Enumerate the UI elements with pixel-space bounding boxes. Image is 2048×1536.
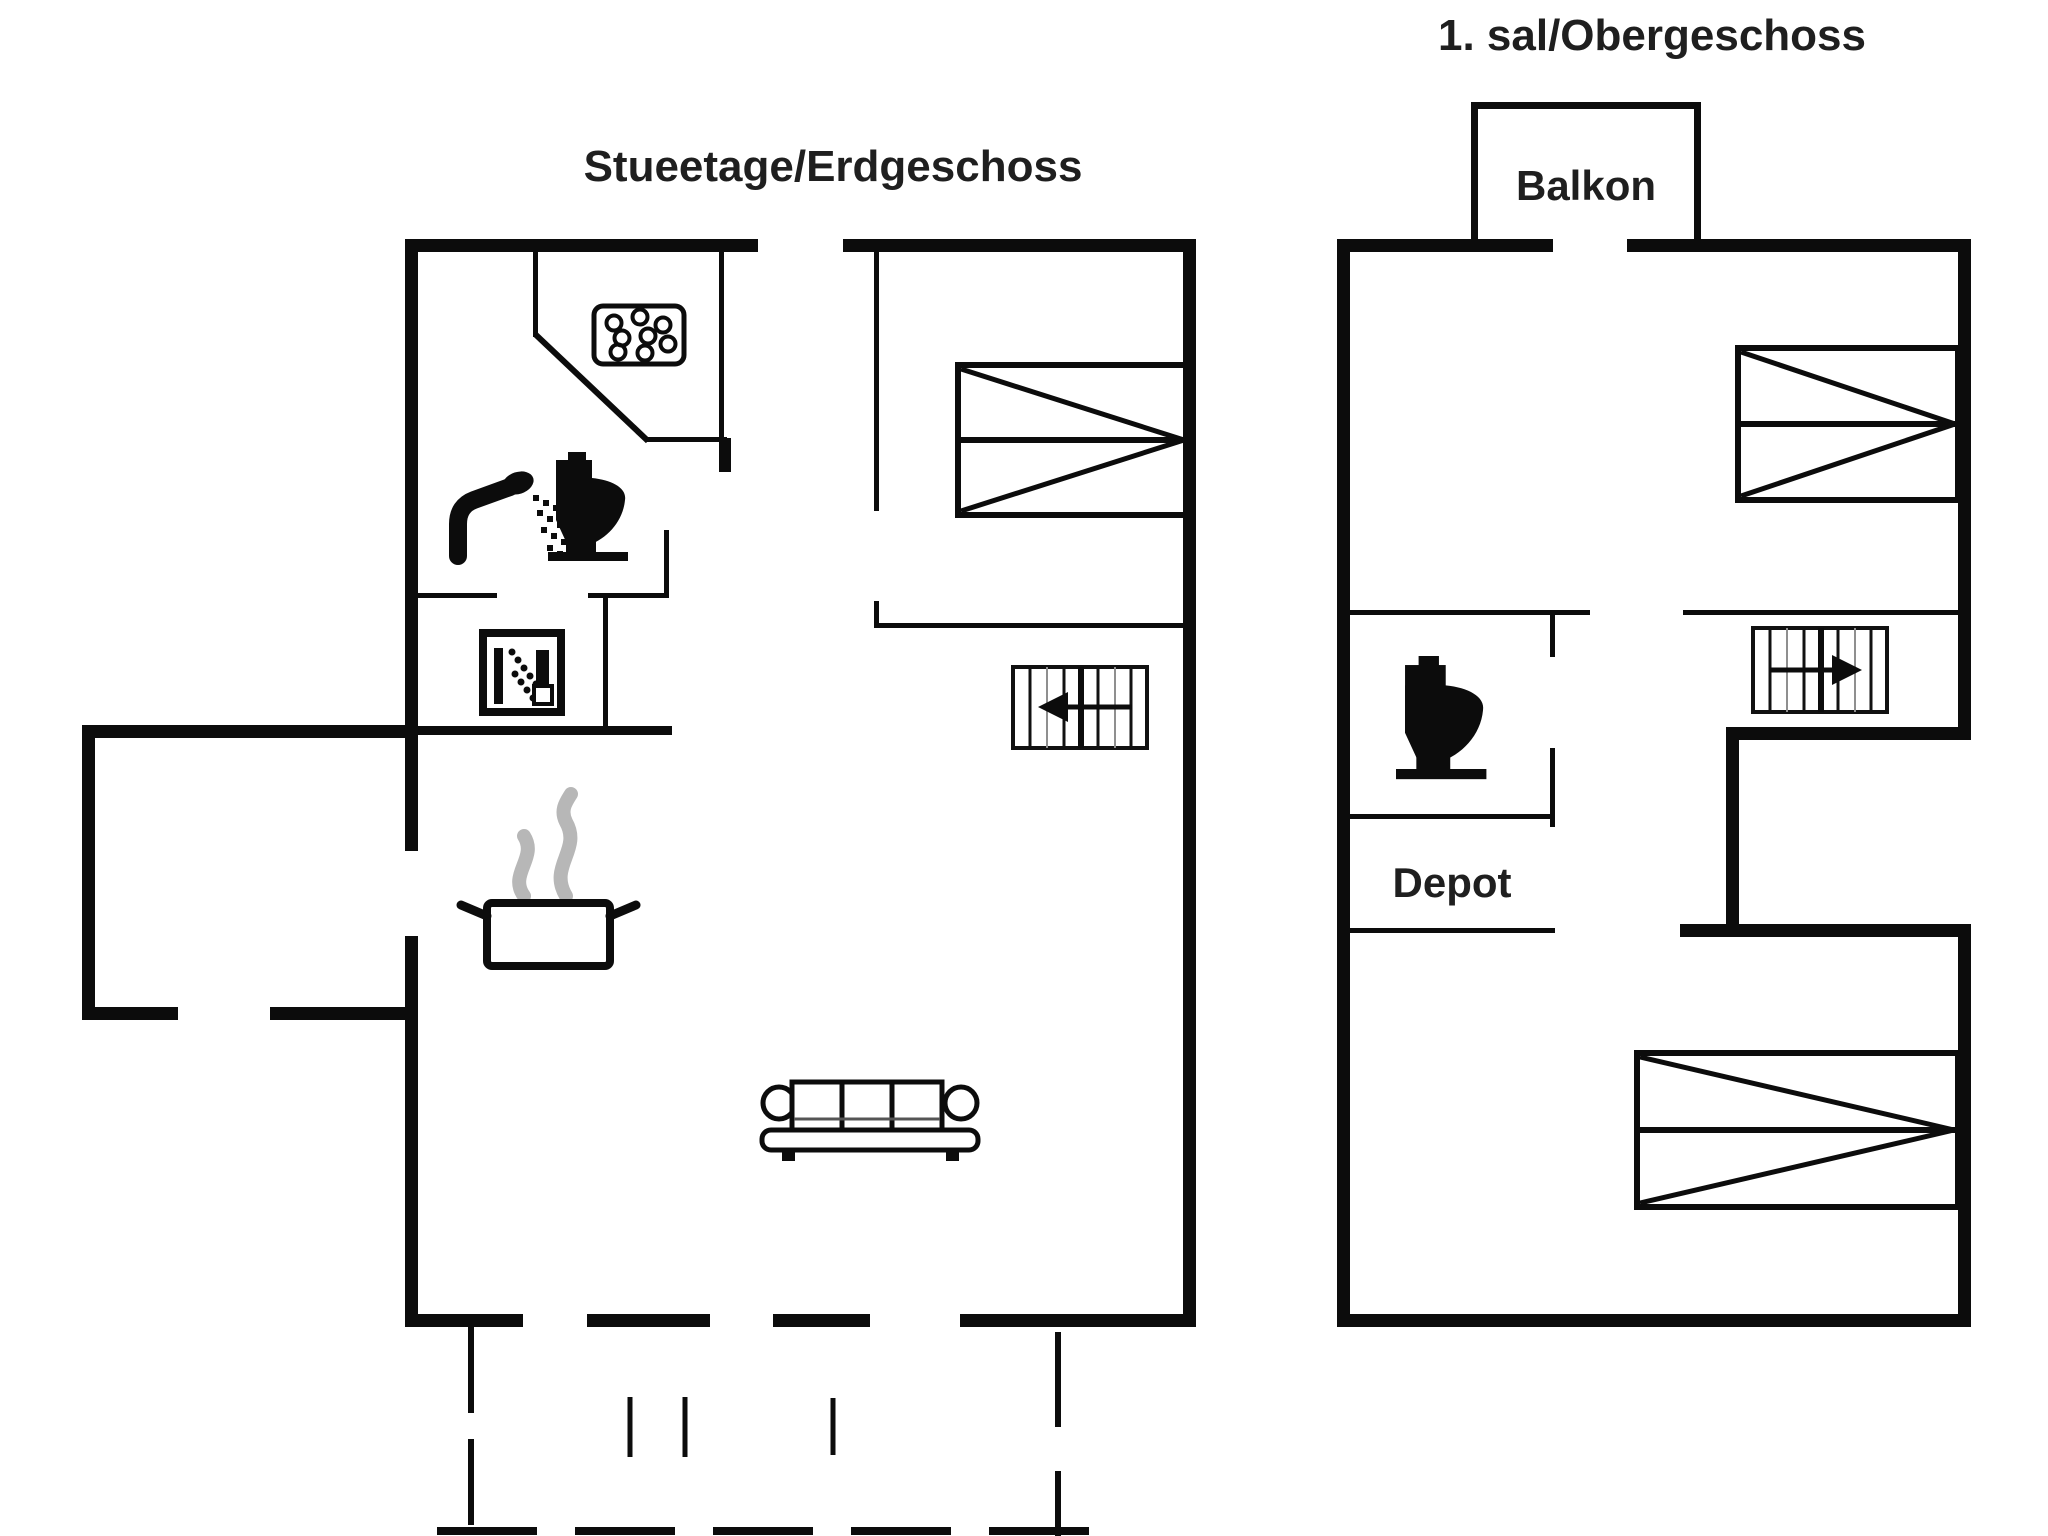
toilet-icon <box>548 452 628 561</box>
upper-floor-title: 1. sal/Obergeschoss <box>1438 11 1866 60</box>
ground-floor-exterior-walls <box>405 239 1196 1327</box>
sofa-icon <box>762 1082 978 1161</box>
double-bed-icon-ground <box>958 365 1187 515</box>
balcony-label: Balkon <box>1516 162 1656 209</box>
stairs-icon-ground <box>1013 667 1147 748</box>
storage-room-label: Depot <box>1393 859 1512 906</box>
double-bed-icon-upper-top <box>1738 348 1958 500</box>
double-bed-icon-upper-bottom <box>1637 1053 1958 1207</box>
ground-floor-plan: Stueetage/Erdgeschoss <box>82 142 1196 1536</box>
toilet-icon-upper <box>1396 656 1486 779</box>
whirlpool-icon <box>594 306 684 364</box>
cooking-pot-icon <box>461 794 636 966</box>
upper-floor-plan: 1. sal/Obergeschoss Balkon Depot <box>1337 11 1971 1327</box>
ground-floor-title: Stueetage/Erdgeschoss <box>584 142 1083 191</box>
stairs-icon-upper <box>1753 628 1887 712</box>
floor-plan-canvas: Stueetage/Erdgeschoss <box>0 0 2048 1536</box>
annex-walls <box>82 725 418 1020</box>
shower-cabin-icon <box>483 633 561 712</box>
upper-floor-exterior-walls <box>1337 239 1971 1327</box>
terrace-dashed-outline <box>437 1327 1090 1536</box>
